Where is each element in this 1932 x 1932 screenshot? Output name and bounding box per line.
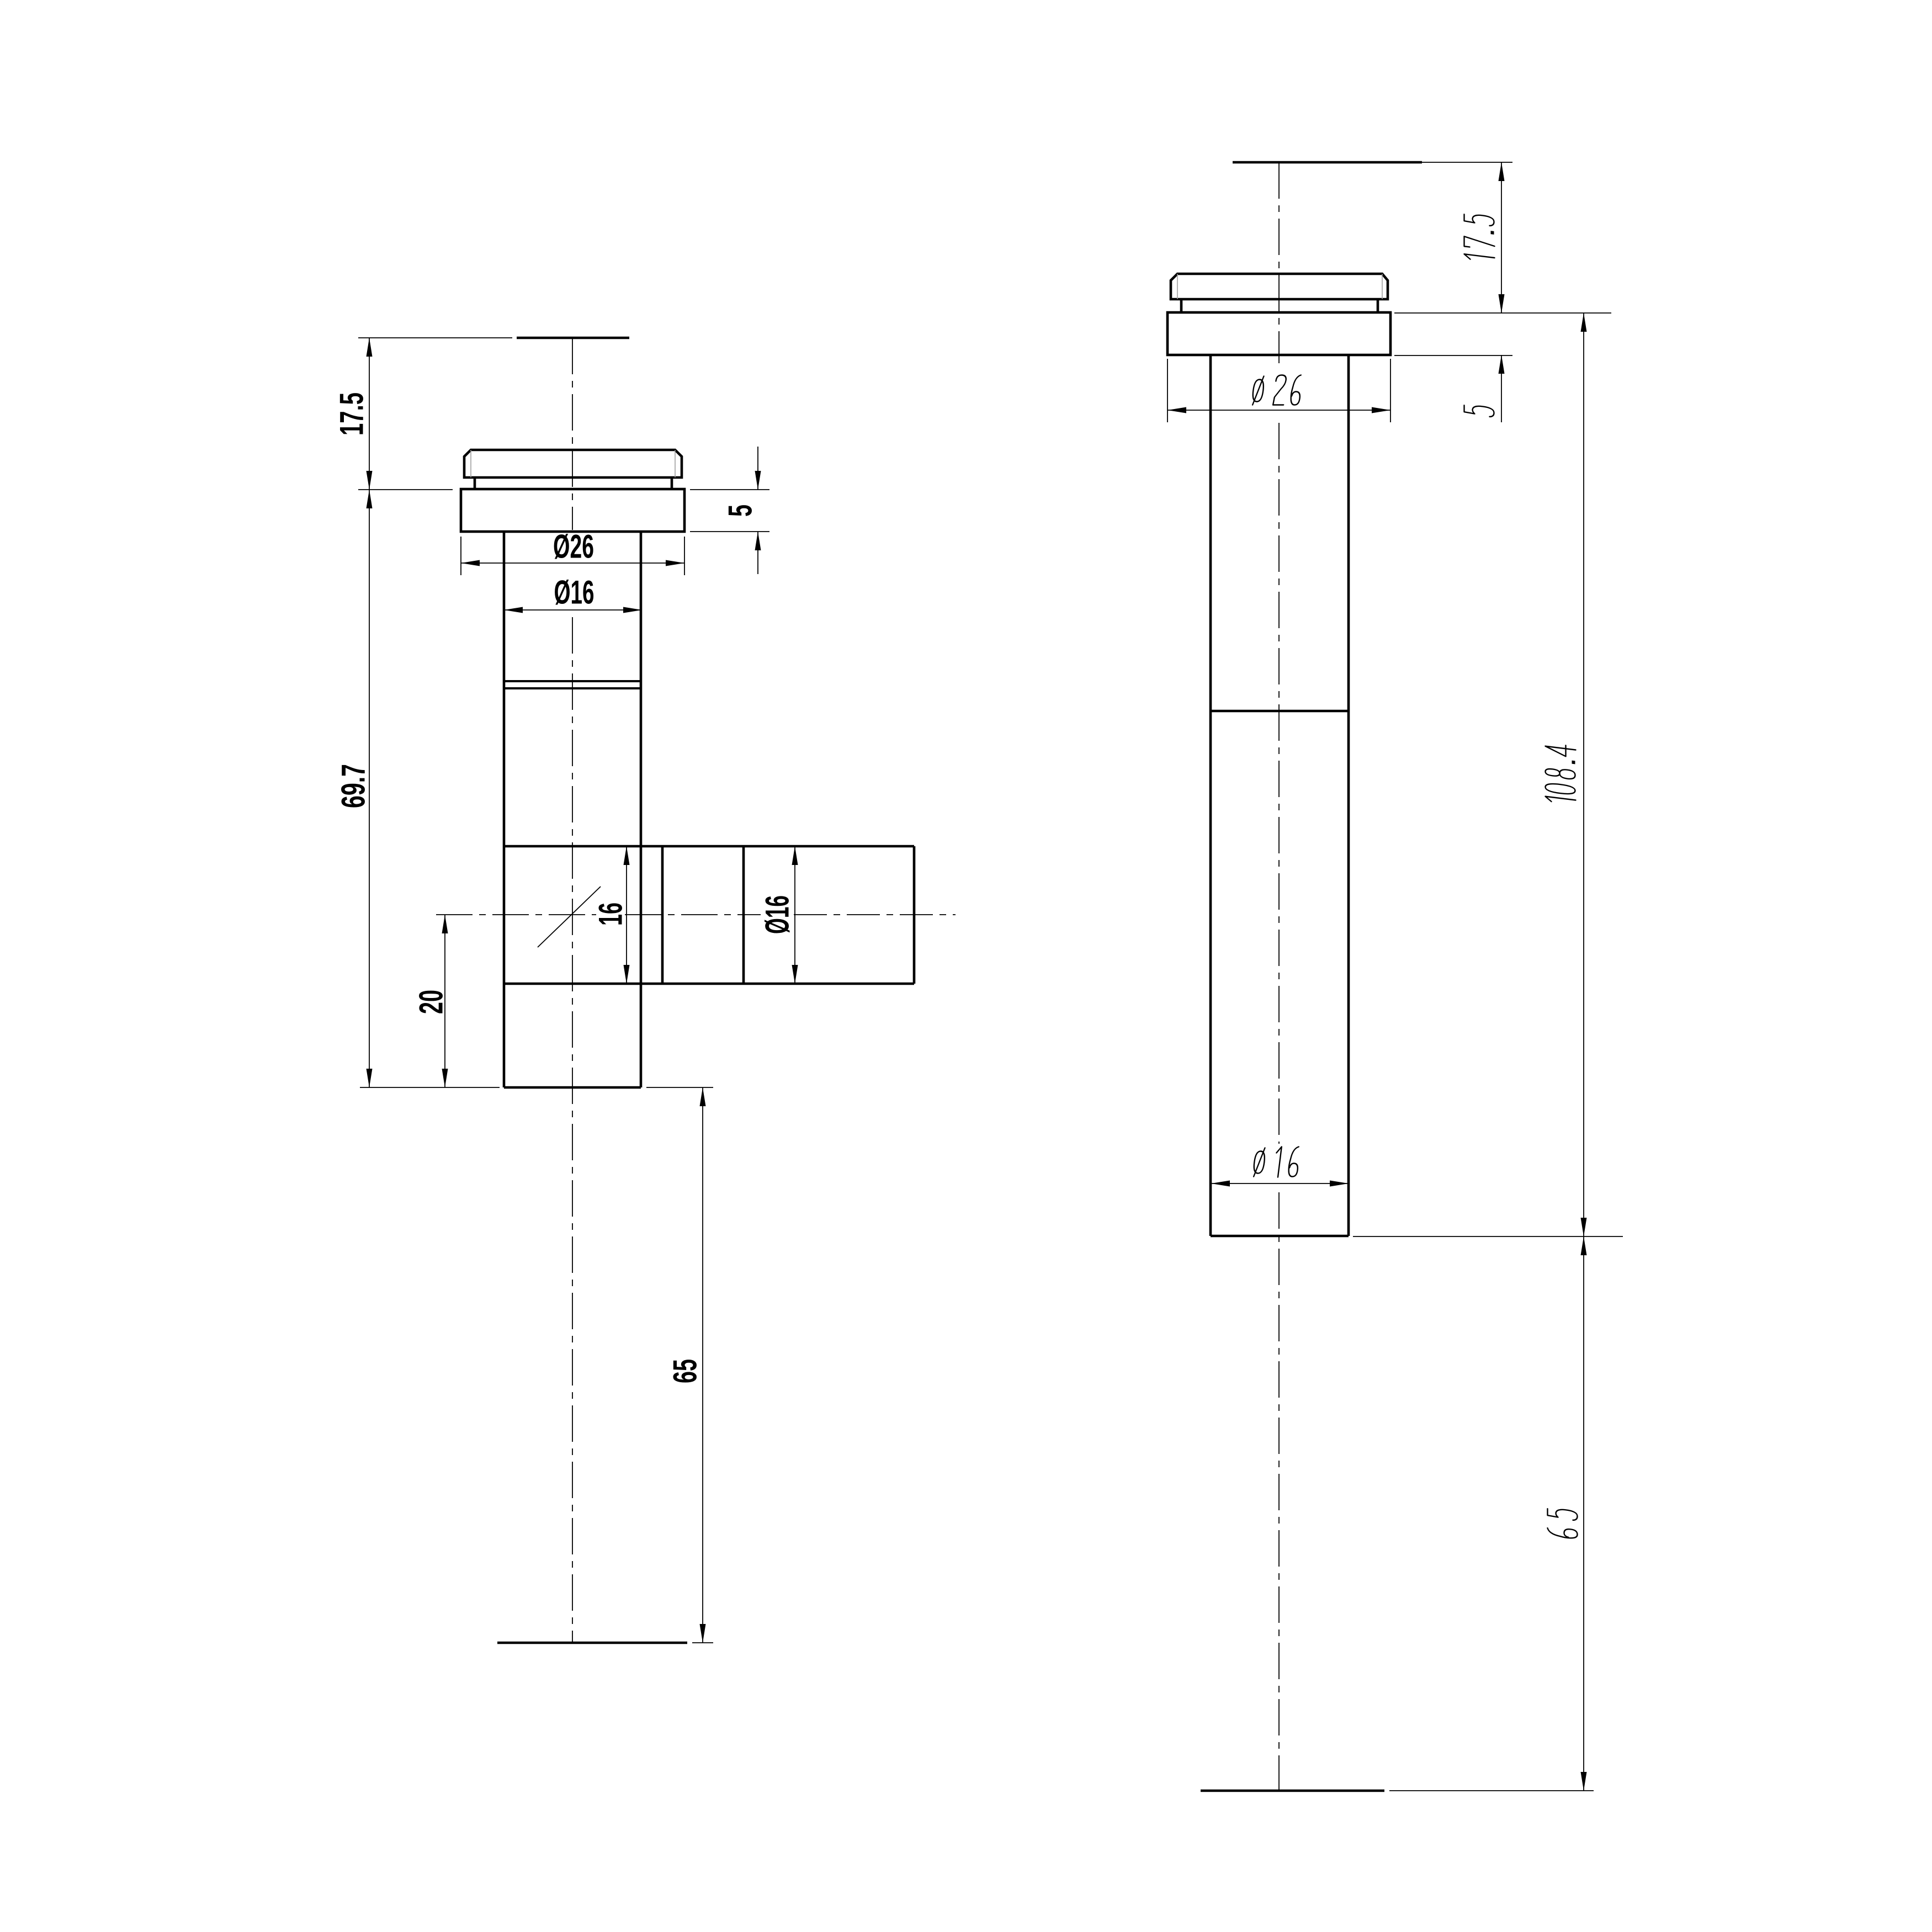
svg-text:65: 65 (667, 1359, 704, 1383)
svg-text:20: 20 (413, 990, 450, 1014)
svg-text:Ø16: Ø16 (759, 895, 796, 934)
svg-text:69.7: 69.7 (335, 764, 372, 808)
svg-text:17.5: 17.5 (333, 392, 370, 436)
svg-text:Ø16: Ø16 (554, 574, 595, 611)
svg-text:5: 5 (722, 505, 759, 517)
svg-text:Ø26: Ø26 (553, 528, 594, 565)
svg-text:16: 16 (592, 903, 629, 926)
